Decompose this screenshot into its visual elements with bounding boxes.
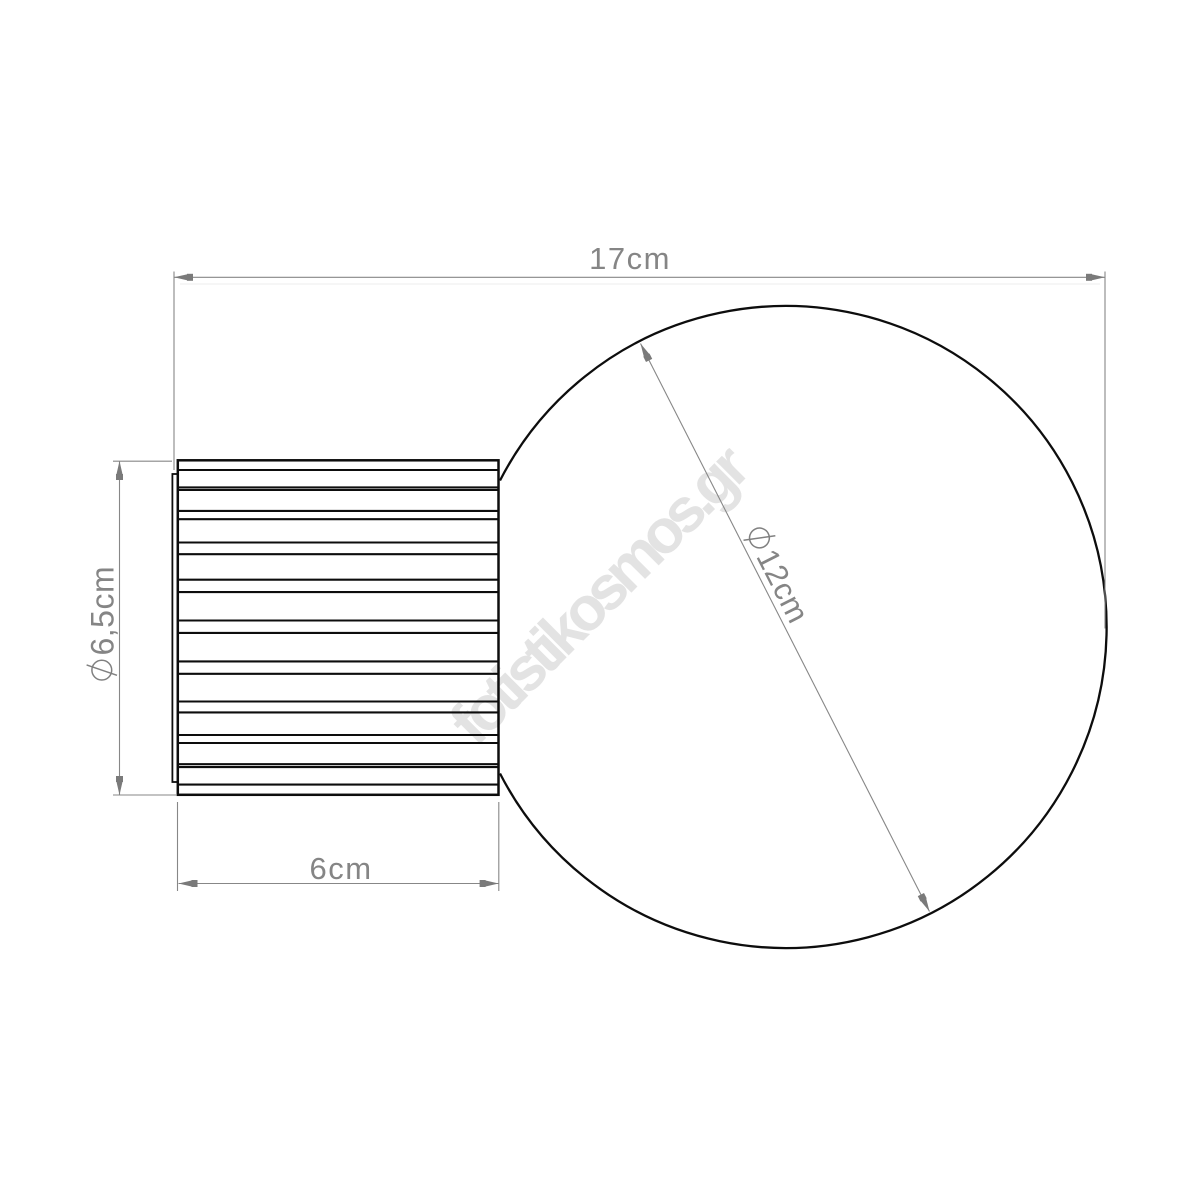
svg-text:17cm: 17cm [589,241,671,276]
svg-text:6,5cm: 6,5cm [84,566,120,656]
svg-text:6cm: 6cm [309,851,372,886]
